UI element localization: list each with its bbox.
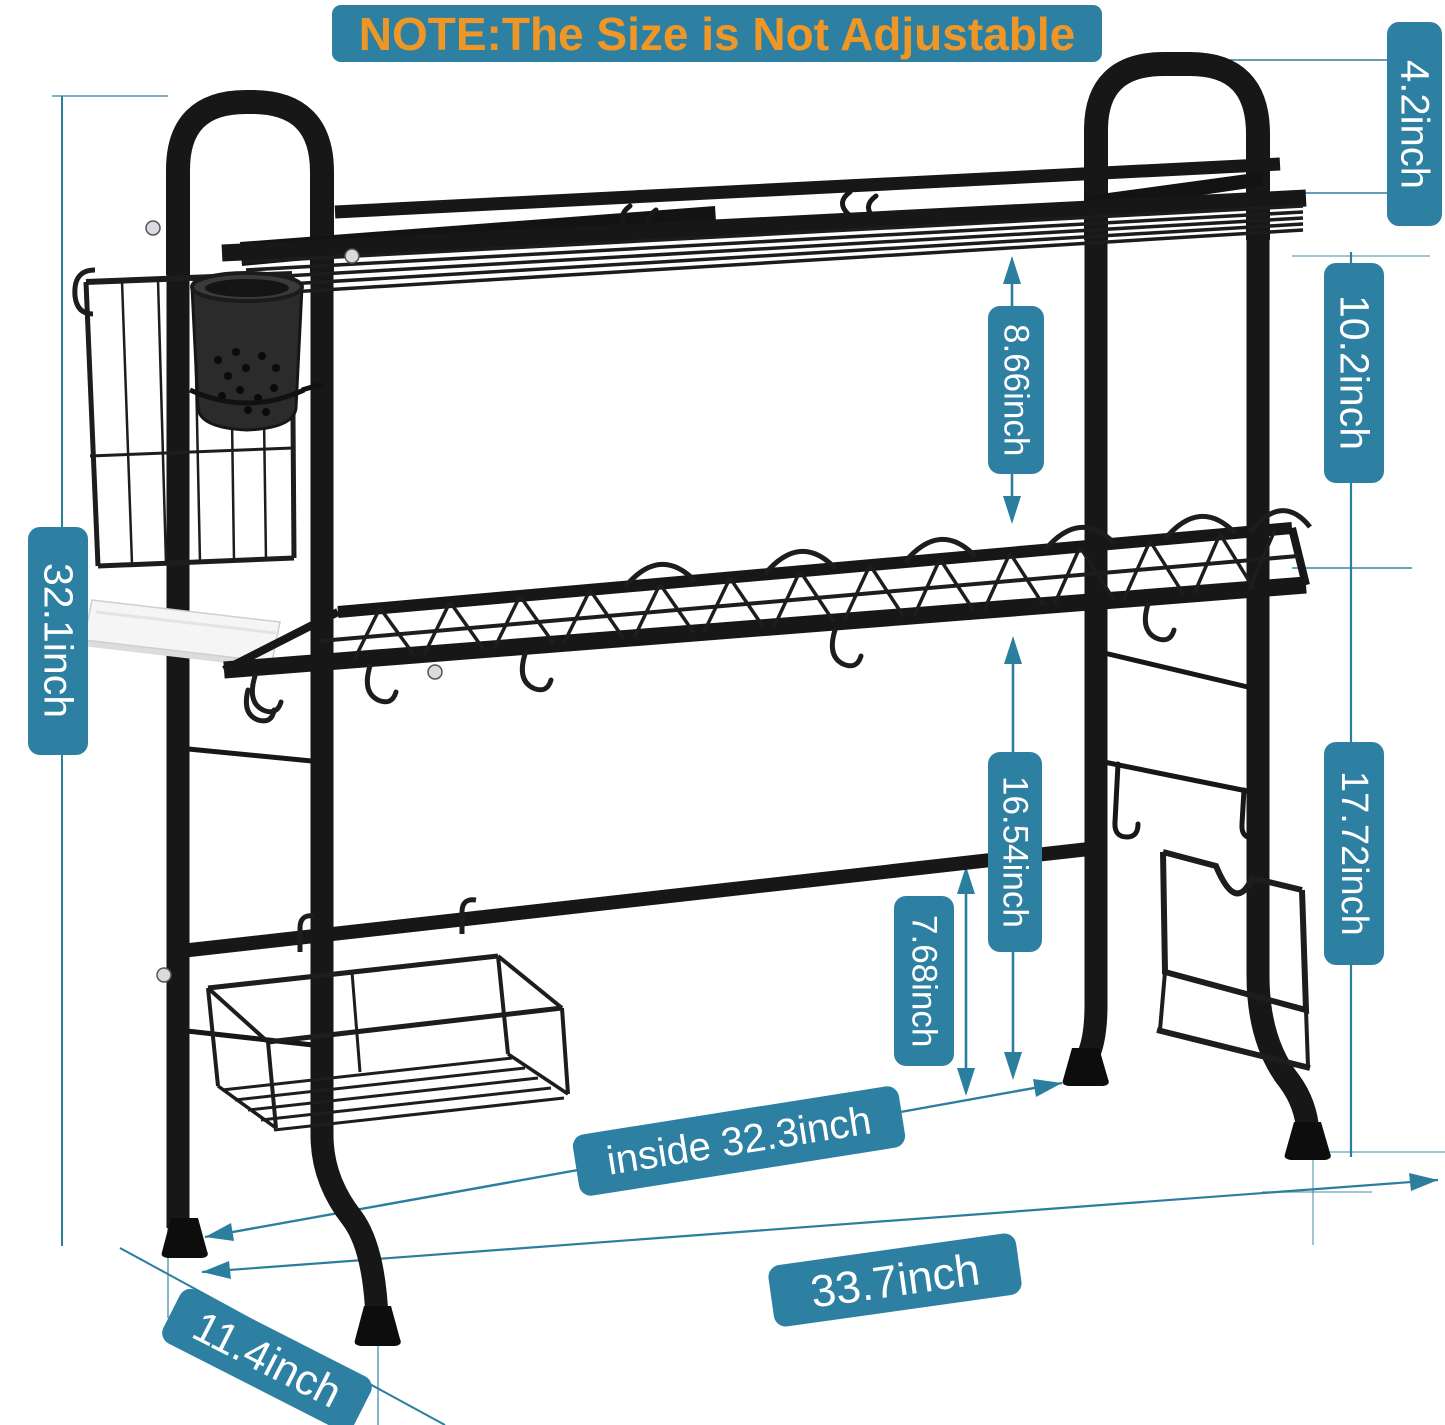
front-left-leg <box>322 250 377 1318</box>
arrowhead-icon <box>1003 256 1021 284</box>
dim-label-total-height: 32.1inch <box>28 527 88 755</box>
arrowhead-icon <box>202 1261 231 1279</box>
note-text: NOTE:The Size is Not Adjustable <box>359 7 1075 61</box>
arrowhead-icon <box>205 1223 234 1241</box>
board-holder <box>1157 852 1310 1068</box>
dim-label-handle-height: 4.2inch <box>1387 22 1442 226</box>
arrowhead-icon <box>1033 1079 1062 1097</box>
dim-label-shelf-to-top: 10.2inch <box>1324 263 1384 483</box>
cutlery-cup <box>190 273 322 430</box>
dim-label-under-shelf-clearance: 16.54inch <box>988 752 1042 952</box>
dim-label-side-clearance: 17.72inch <box>1324 742 1384 965</box>
top-shelf <box>222 164 1306 294</box>
rack-illustration <box>0 0 1445 1425</box>
arrowhead-icon <box>1004 1052 1022 1080</box>
product-dimension-diagram: NOTE:The Size is Not Adjustable 4.2inch … <box>0 0 1445 1425</box>
dim-label-tier-gap: 8.66inch <box>988 306 1044 474</box>
arrowhead-icon <box>1409 1173 1438 1191</box>
arrowhead-icon <box>957 1068 975 1096</box>
note-banner: NOTE:The Size is Not Adjustable <box>332 5 1102 62</box>
arrowhead-icon <box>1003 496 1021 524</box>
middle-shelf <box>224 511 1310 712</box>
arrowhead-icon <box>1004 636 1022 664</box>
rear-right-leg <box>1088 230 1096 1056</box>
dim-label-bar-to-counter: 7.68inch <box>894 896 954 1066</box>
